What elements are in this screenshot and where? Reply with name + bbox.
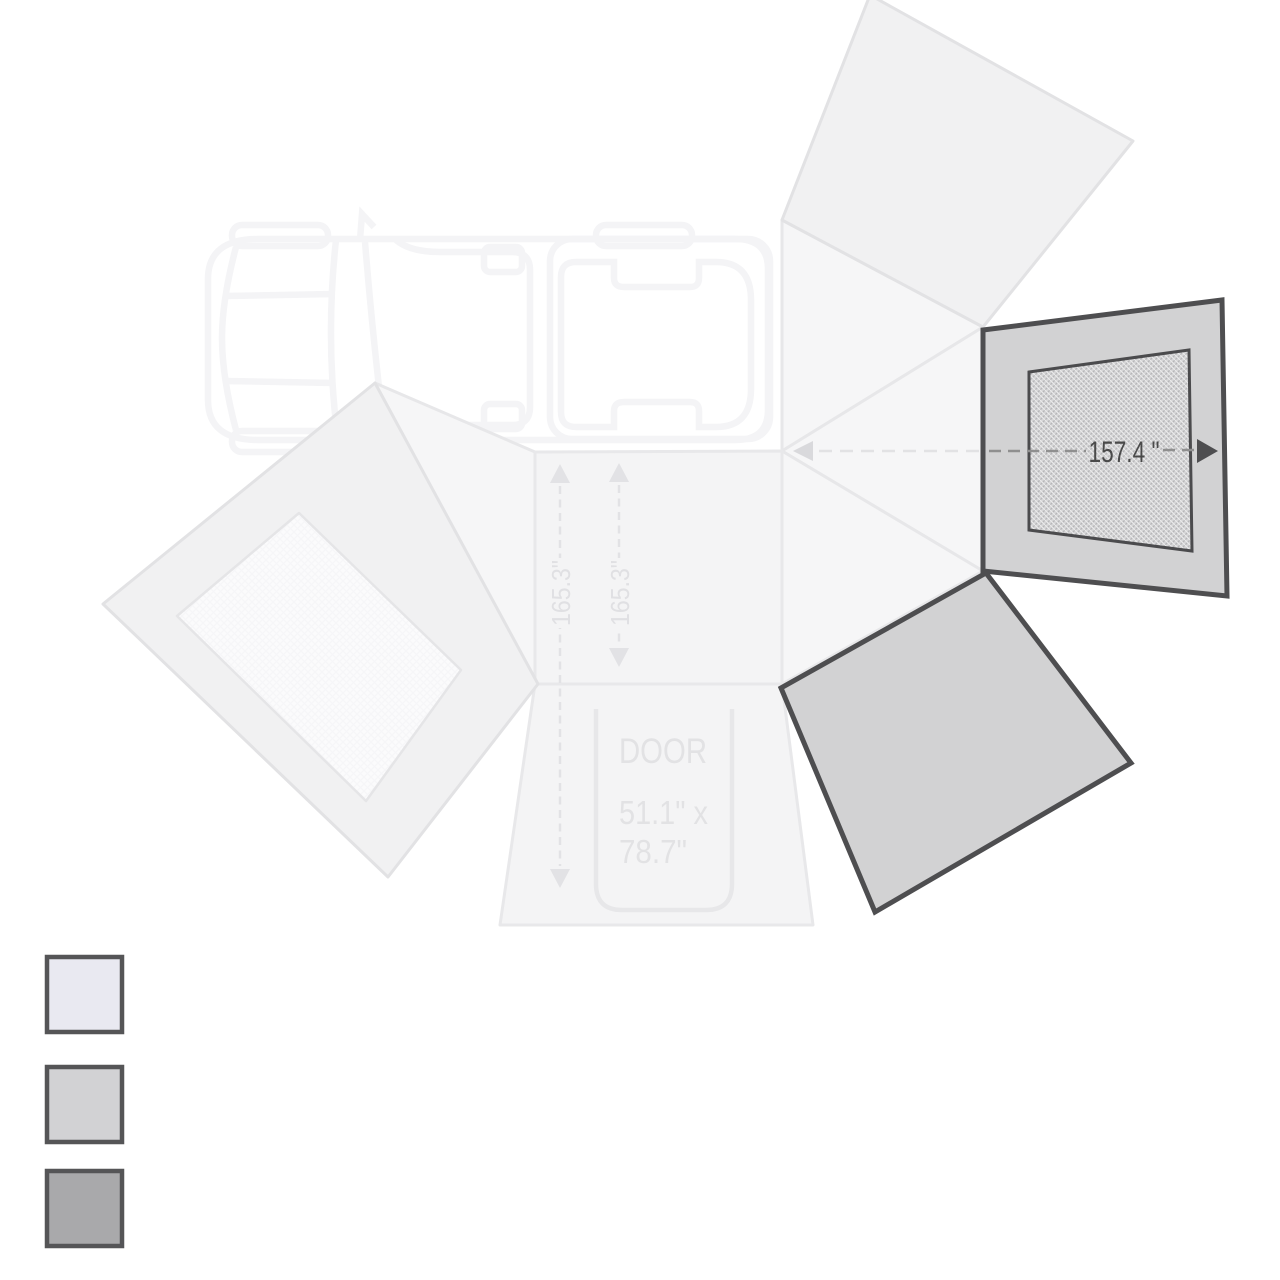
svg-text:78.7": 78.7"	[619, 833, 687, 870]
svg-text:DOOR: DOOR	[619, 732, 707, 771]
svg-text:51.1" x: 51.1" x	[619, 794, 708, 831]
svg-text:165.3": 165.3"	[546, 560, 576, 626]
svg-text:157.4 ": 157.4 "	[1089, 436, 1160, 469]
svg-text:165.3": 165.3"	[605, 560, 635, 626]
